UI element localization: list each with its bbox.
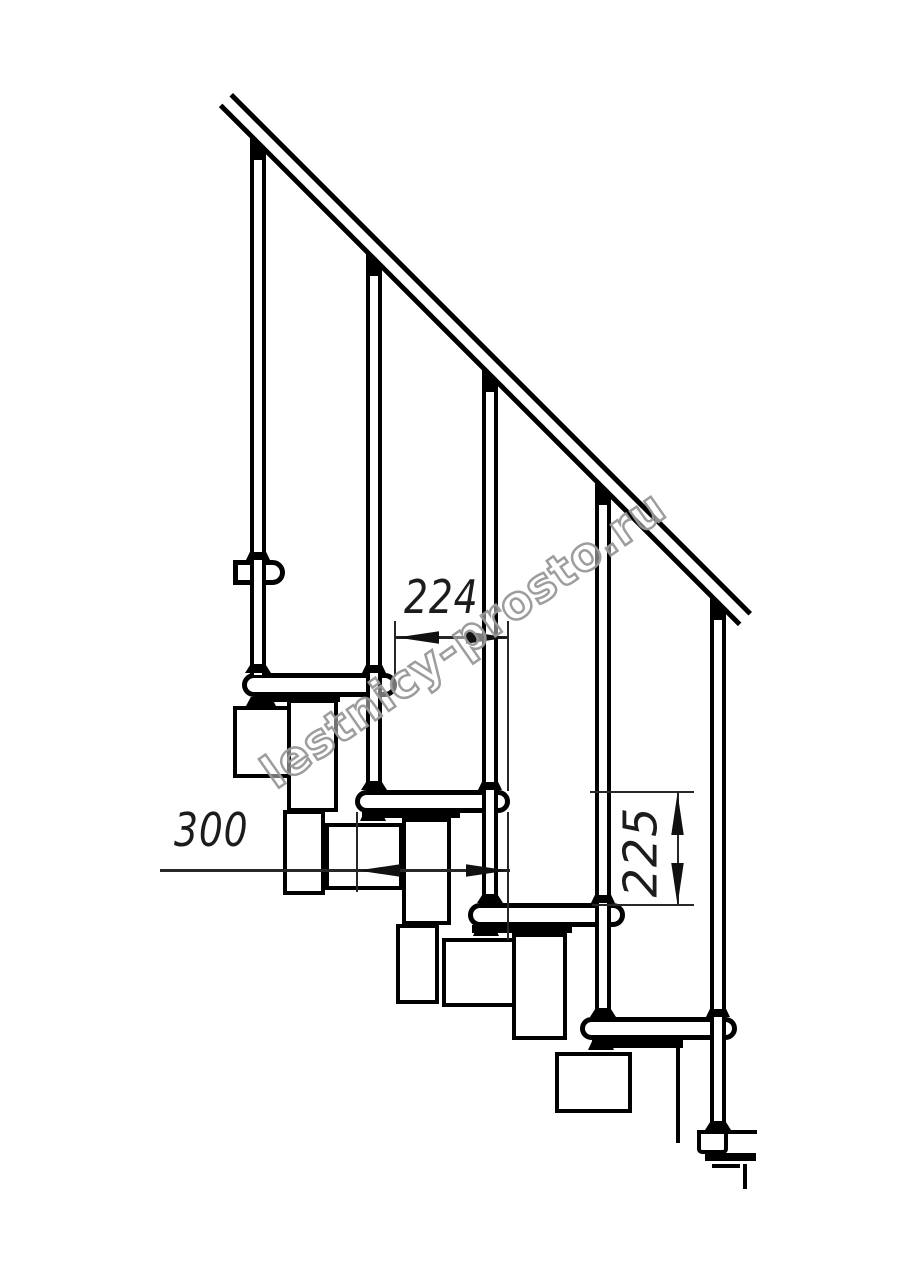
- floor-step-vertical: [743, 1164, 747, 1189]
- staircase-drawing: 224 300 225 lestnicy-prosto.ru: [0, 0, 914, 1280]
- baluster-3-collar: [478, 782, 502, 790]
- dim-300-line: [160, 869, 510, 872]
- dim-225-label: 225: [613, 807, 667, 898]
- module-box-2: [325, 823, 403, 890]
- tread-5-under-tab: [588, 1041, 614, 1050]
- module-edge-line: [676, 1048, 680, 1143]
- module-box-1-lower: [283, 810, 325, 895]
- baluster-4-collar: [591, 895, 615, 903]
- floor-foot-block: [697, 1130, 728, 1154]
- dim-300-extension-left: [356, 812, 358, 892]
- tread-4-under-tab: [473, 927, 499, 936]
- module-box-5: [512, 933, 567, 1040]
- floor-step-horizontal: [712, 1164, 740, 1168]
- floor-line-right: [727, 1130, 757, 1134]
- dim-225-arrowhead-up-icon: [671, 793, 684, 835]
- baluster-5-foot: [705, 1121, 731, 1130]
- dim-300-extension-right: [507, 812, 509, 940]
- module-box-6: [555, 1052, 632, 1113]
- baluster-2-foot: [361, 781, 387, 790]
- tread-3-under-tab: [360, 812, 386, 821]
- baluster-5-collar: [706, 1009, 730, 1017]
- module-box-3-lower: [396, 924, 439, 1004]
- dim-300-label: 300: [174, 803, 248, 857]
- baluster-3-foot: [477, 894, 503, 903]
- module-box-4: [442, 938, 518, 1007]
- dim-225-arrowhead-down-icon: [671, 863, 684, 905]
- baluster-1-collar: [246, 552, 270, 560]
- floor-foot-plate: [705, 1153, 756, 1161]
- tread-2-under-tab: [246, 697, 276, 706]
- baluster-1-foot: [245, 664, 271, 673]
- baluster-1: [250, 160, 266, 675]
- baluster-4-foot: [590, 1008, 616, 1017]
- baluster-5: [710, 620, 726, 1130]
